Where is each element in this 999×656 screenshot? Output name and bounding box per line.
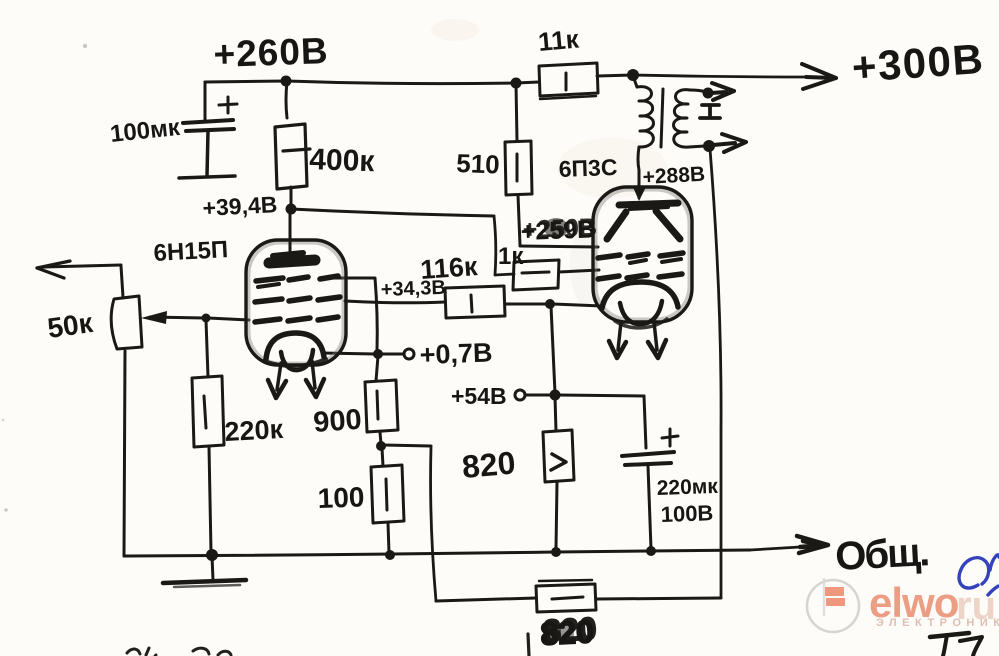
svg-text:6П3С: 6П3С bbox=[558, 154, 618, 182]
svg-text:ЭЛЕКТРОНИК: ЭЛЕКТРОНИК bbox=[876, 617, 999, 629]
svg-text:510: 510 bbox=[456, 148, 500, 179]
svg-text:+260В: +260В bbox=[213, 30, 329, 75]
svg-text:+34,3В: +34,3В bbox=[380, 277, 446, 301]
svg-text:11к: 11к bbox=[537, 23, 581, 57]
svg-text:+288В: +288В bbox=[642, 163, 706, 189]
svg-text:400к: 400к bbox=[309, 143, 376, 178]
svg-text:Общ.: Общ. bbox=[834, 530, 929, 579]
svg-text:+54В: +54В bbox=[451, 383, 507, 409]
svg-text:900: 900 bbox=[312, 404, 363, 439]
svg-text:+39,4В: +39,4В bbox=[202, 191, 278, 221]
svg-text:1к: 1к bbox=[498, 243, 524, 270]
svg-text:220мк: 220мк bbox=[656, 475, 718, 500]
svg-text:+0,7В: +0,7В bbox=[419, 337, 493, 370]
svg-text:220к: 220к bbox=[224, 414, 285, 447]
svg-text:100В: 100В bbox=[660, 500, 713, 527]
svg-text:100: 100 bbox=[317, 481, 365, 514]
svg-text:50к: 50к bbox=[46, 307, 96, 344]
svg-text:6Н15П: 6Н15П bbox=[153, 236, 229, 267]
svg-text:820: 820 bbox=[460, 444, 516, 485]
svg-text:+300В: +300В bbox=[850, 35, 985, 91]
